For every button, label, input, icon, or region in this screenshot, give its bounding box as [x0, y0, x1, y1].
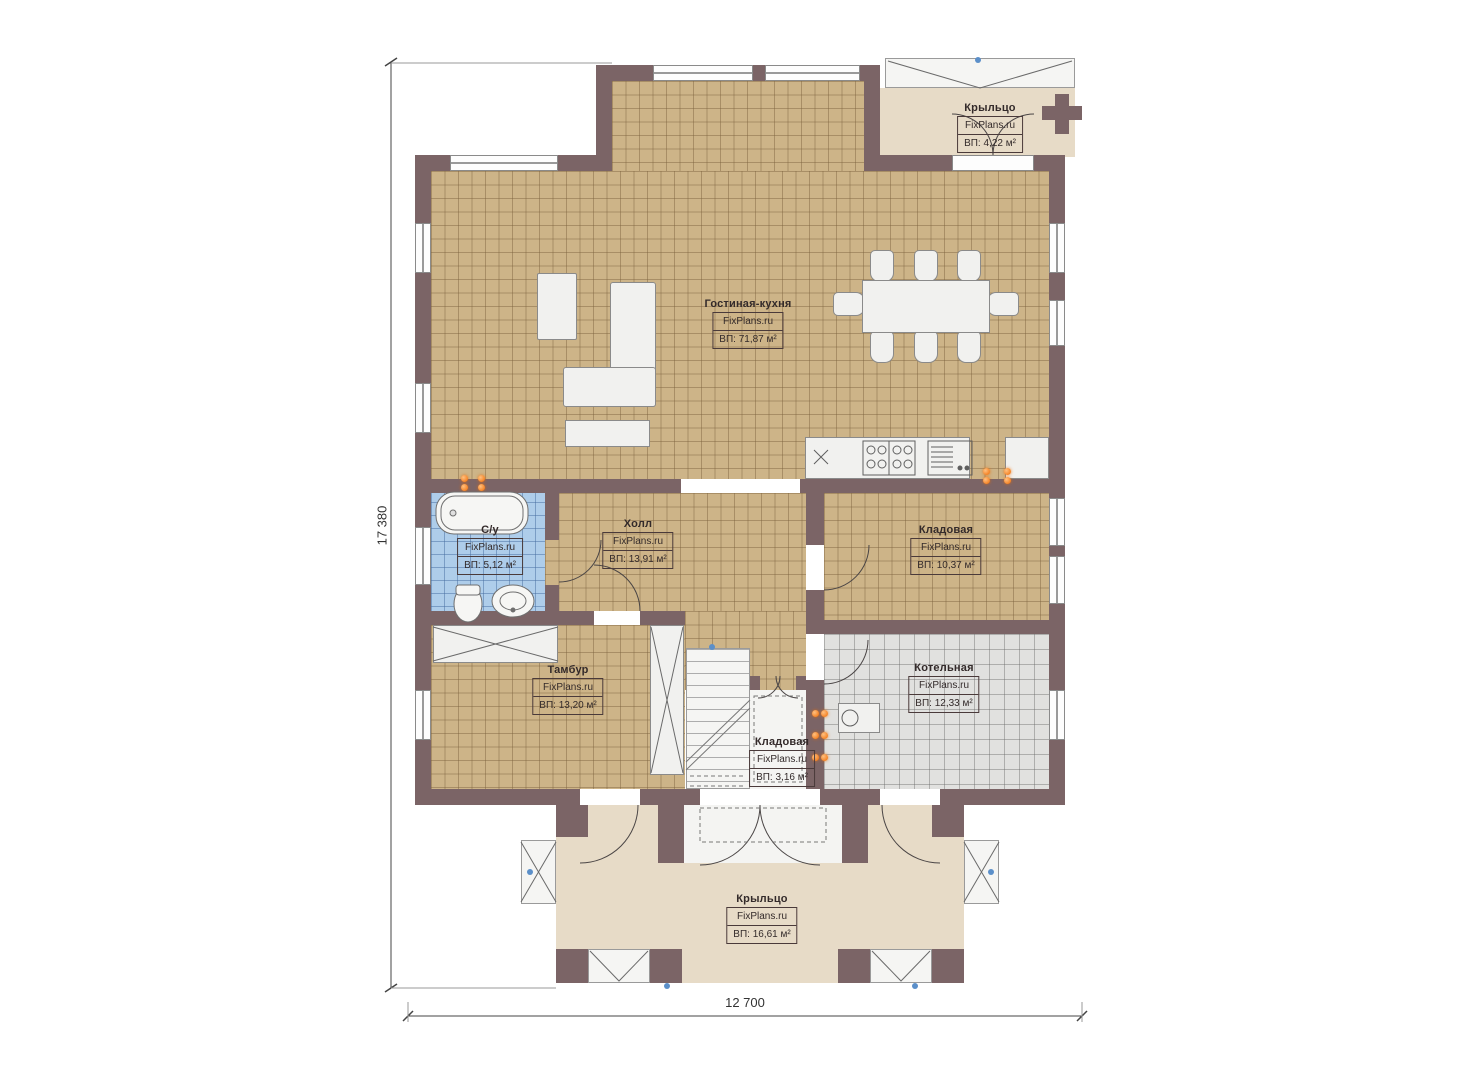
room-name: Кладовая	[919, 524, 973, 536]
radiator-marker	[461, 475, 468, 482]
room-name: Тамбур	[547, 664, 588, 676]
window-right-boiler	[1049, 690, 1065, 740]
room-area: ВП: 10,37 м²	[911, 556, 980, 574]
wall-center-vertical-2	[806, 590, 824, 634]
wall-bottom-1	[415, 789, 580, 805]
porch-column-top-left	[556, 805, 588, 837]
dining-chair	[957, 250, 981, 282]
wall-bottom-2	[640, 789, 700, 805]
porch-bottom-right-steps	[870, 949, 932, 983]
wall-storage-small-top-2	[796, 676, 806, 690]
dining-chair	[957, 331, 981, 363]
dimension-height: 17 380	[375, 496, 390, 556]
entry-stub-right	[842, 805, 868, 863]
radiator-marker	[983, 477, 990, 484]
room-name: Холл	[624, 518, 652, 530]
kitchen-counter	[805, 437, 970, 479]
staircase	[686, 648, 750, 789]
label-porch-bottom: Крыльцо FixPlans.ru ВП: 16,61 м²	[726, 893, 797, 944]
brand-link: FixPlans.ru	[458, 539, 522, 556]
dining-chair	[914, 331, 938, 363]
wardrobe-tall	[650, 625, 684, 775]
dining-chair	[870, 331, 894, 363]
porch-left-side-steps	[521, 840, 556, 904]
wall-storage-small-top-1	[750, 676, 760, 690]
room-area: ВП: 13,20 м²	[533, 696, 602, 714]
wall-vestibule-top-1	[559, 611, 594, 625]
label-living-kitchen: Гостиная-кухня FixPlans.ru ВП: 71,87 м²	[704, 298, 791, 349]
label-storage-small: Кладовая FixPlans.ru ВП: 3,16 м²	[749, 736, 815, 787]
floor-plan: Крыльцо FixPlans.ru ВП: 4,22 м² Гостиная…	[0, 0, 1474, 1080]
radiator-marker	[461, 484, 468, 491]
wall-bathroom-right-1	[545, 489, 559, 540]
room-area: ВП: 12,33 м²	[909, 694, 978, 712]
label-bathroom: С/у FixPlans.ru ВП: 5,12 м²	[457, 524, 523, 575]
room-area: ВП: 5,12 м²	[458, 556, 522, 574]
porch-column-bottom-midright	[838, 949, 870, 983]
room-name: Котельная	[914, 662, 973, 674]
porch-bottom-left-steps	[588, 949, 650, 983]
room-name: С/у	[481, 524, 499, 536]
chimney-marker-v	[1055, 94, 1069, 134]
wardrobe-vestibule	[433, 625, 558, 663]
radiator-marker	[1004, 477, 1011, 484]
room-name: Гостиная-кухня	[704, 298, 791, 310]
brand-link: FixPlans.ru	[750, 751, 814, 768]
label-hall: Холл FixPlans.ru ВП: 13,91 м²	[602, 518, 673, 569]
radiator-marker	[821, 710, 828, 717]
brand-link: FixPlans.ru	[958, 117, 1022, 134]
room-name: Крыльцо	[964, 102, 1015, 114]
brand-link: FixPlans.ru	[713, 313, 782, 330]
radiator-marker	[812, 710, 819, 717]
wall-bottom-4	[940, 789, 1065, 805]
window-right-2	[1049, 300, 1065, 346]
window-left-2	[415, 383, 431, 433]
porch-column-bottom-left	[556, 949, 588, 983]
porch-column-top-right	[932, 805, 964, 837]
room-area: ВП: 4,22 м²	[958, 134, 1022, 152]
room-area: ВП: 13,91 м²	[603, 550, 672, 568]
radiator-marker	[983, 468, 990, 475]
window-left-vestibule	[415, 690, 431, 740]
radiator-marker	[821, 732, 828, 739]
wall-center-vertical-1	[806, 479, 824, 545]
window-left-bathroom	[415, 527, 431, 585]
window-right-1	[1049, 223, 1065, 273]
window-block-top-1	[653, 65, 753, 81]
radiator-marker	[821, 754, 828, 761]
dining-chair	[833, 292, 865, 316]
porch-top-steps	[885, 58, 1075, 88]
label-vestibule: Тамбур FixPlans.ru ВП: 13,20 м²	[532, 664, 603, 715]
label-storage-big: Кладовая FixPlans.ru ВП: 10,37 м²	[910, 524, 981, 575]
brand-link: FixPlans.ru	[603, 533, 672, 550]
window-left-1	[415, 223, 431, 273]
window-right-storage-2	[1049, 556, 1065, 604]
room-area: ВП: 16,61 м²	[727, 925, 796, 943]
radiator-marker	[478, 484, 485, 491]
door-gap-porch-top	[952, 155, 1034, 171]
room-name: Крыльцо	[736, 893, 787, 905]
brand-link: FixPlans.ru	[911, 539, 980, 556]
porch-column-bottom-right	[932, 949, 964, 983]
room-living-kitchen-upper	[612, 81, 864, 171]
wall-living-south-right	[800, 479, 1049, 493]
brand-link: FixPlans.ru	[533, 679, 602, 696]
brand-link: FixPlans.ru	[909, 677, 978, 694]
boiler-unit	[838, 703, 880, 733]
wall-vestibule-top-2	[640, 611, 685, 625]
dining-chair	[987, 292, 1019, 316]
room-area: ВП: 3,16 м²	[750, 768, 814, 786]
label-porch-top: Крыльцо FixPlans.ru ВП: 4,22 м²	[957, 102, 1023, 153]
room-hall	[545, 493, 806, 611]
room-area: ВП: 71,87 м²	[713, 330, 782, 348]
wall-bottom-3	[820, 789, 880, 805]
porch-right-side-steps	[964, 840, 999, 904]
label-boiler: Котельная FixPlans.ru ВП: 12,33 м²	[908, 662, 979, 713]
room-name: Кладовая	[755, 736, 809, 748]
brand-link: FixPlans.ru	[727, 908, 796, 925]
kitchen-counter-2	[1005, 437, 1049, 479]
sideboard	[565, 420, 650, 447]
window-top-left-wall	[450, 155, 558, 171]
sofa-horizontal	[563, 367, 656, 407]
radiator-marker	[478, 475, 485, 482]
window-right-storage-1	[1049, 498, 1065, 546]
dining-chair	[870, 250, 894, 282]
entry-stub-left	[658, 805, 684, 863]
radiator-marker	[1004, 468, 1011, 475]
dining-table	[862, 280, 990, 333]
coffee-table	[537, 273, 577, 340]
dimension-width: 12 700	[715, 995, 775, 1010]
porch-column-bottom-midleft	[650, 949, 682, 983]
entry-floor	[684, 805, 842, 863]
wall-boiler-top	[824, 620, 1049, 634]
wall-bathroom-bottom	[431, 611, 559, 625]
dining-chair	[914, 250, 938, 282]
window-block-top-2	[765, 65, 860, 81]
